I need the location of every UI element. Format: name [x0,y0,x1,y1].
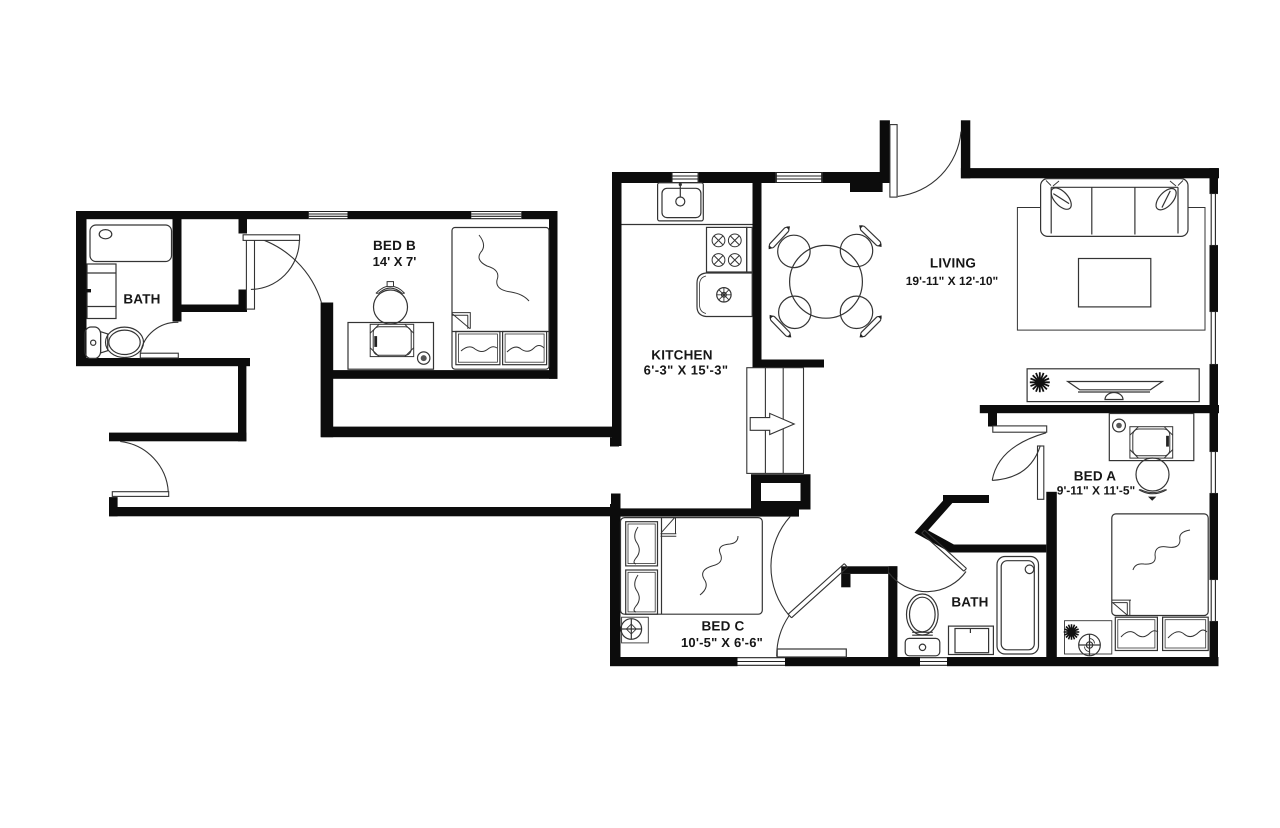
svg-text:BED A: BED A [1074,469,1117,484]
svg-text:BATH: BATH [123,292,160,307]
svg-text:19'-11" X 12'-10": 19'-11" X 12'-10" [906,274,998,288]
svg-text:LIVING: LIVING [930,256,976,271]
svg-text:KITCHEN: KITCHEN [651,348,712,363]
svg-text:14' X 7': 14' X 7' [373,254,417,269]
svg-text:BED B: BED B [373,238,416,253]
svg-text:6'-3" X 15'-3": 6'-3" X 15'-3" [644,363,729,378]
svg-text:9'-11" X 11'-5": 9'-11" X 11'-5" [1057,484,1135,498]
svg-text:10'-5" X 6'-6": 10'-5" X 6'-6" [681,635,763,650]
svg-text:BATH: BATH [951,595,988,610]
svg-text:BED C: BED C [701,619,744,634]
